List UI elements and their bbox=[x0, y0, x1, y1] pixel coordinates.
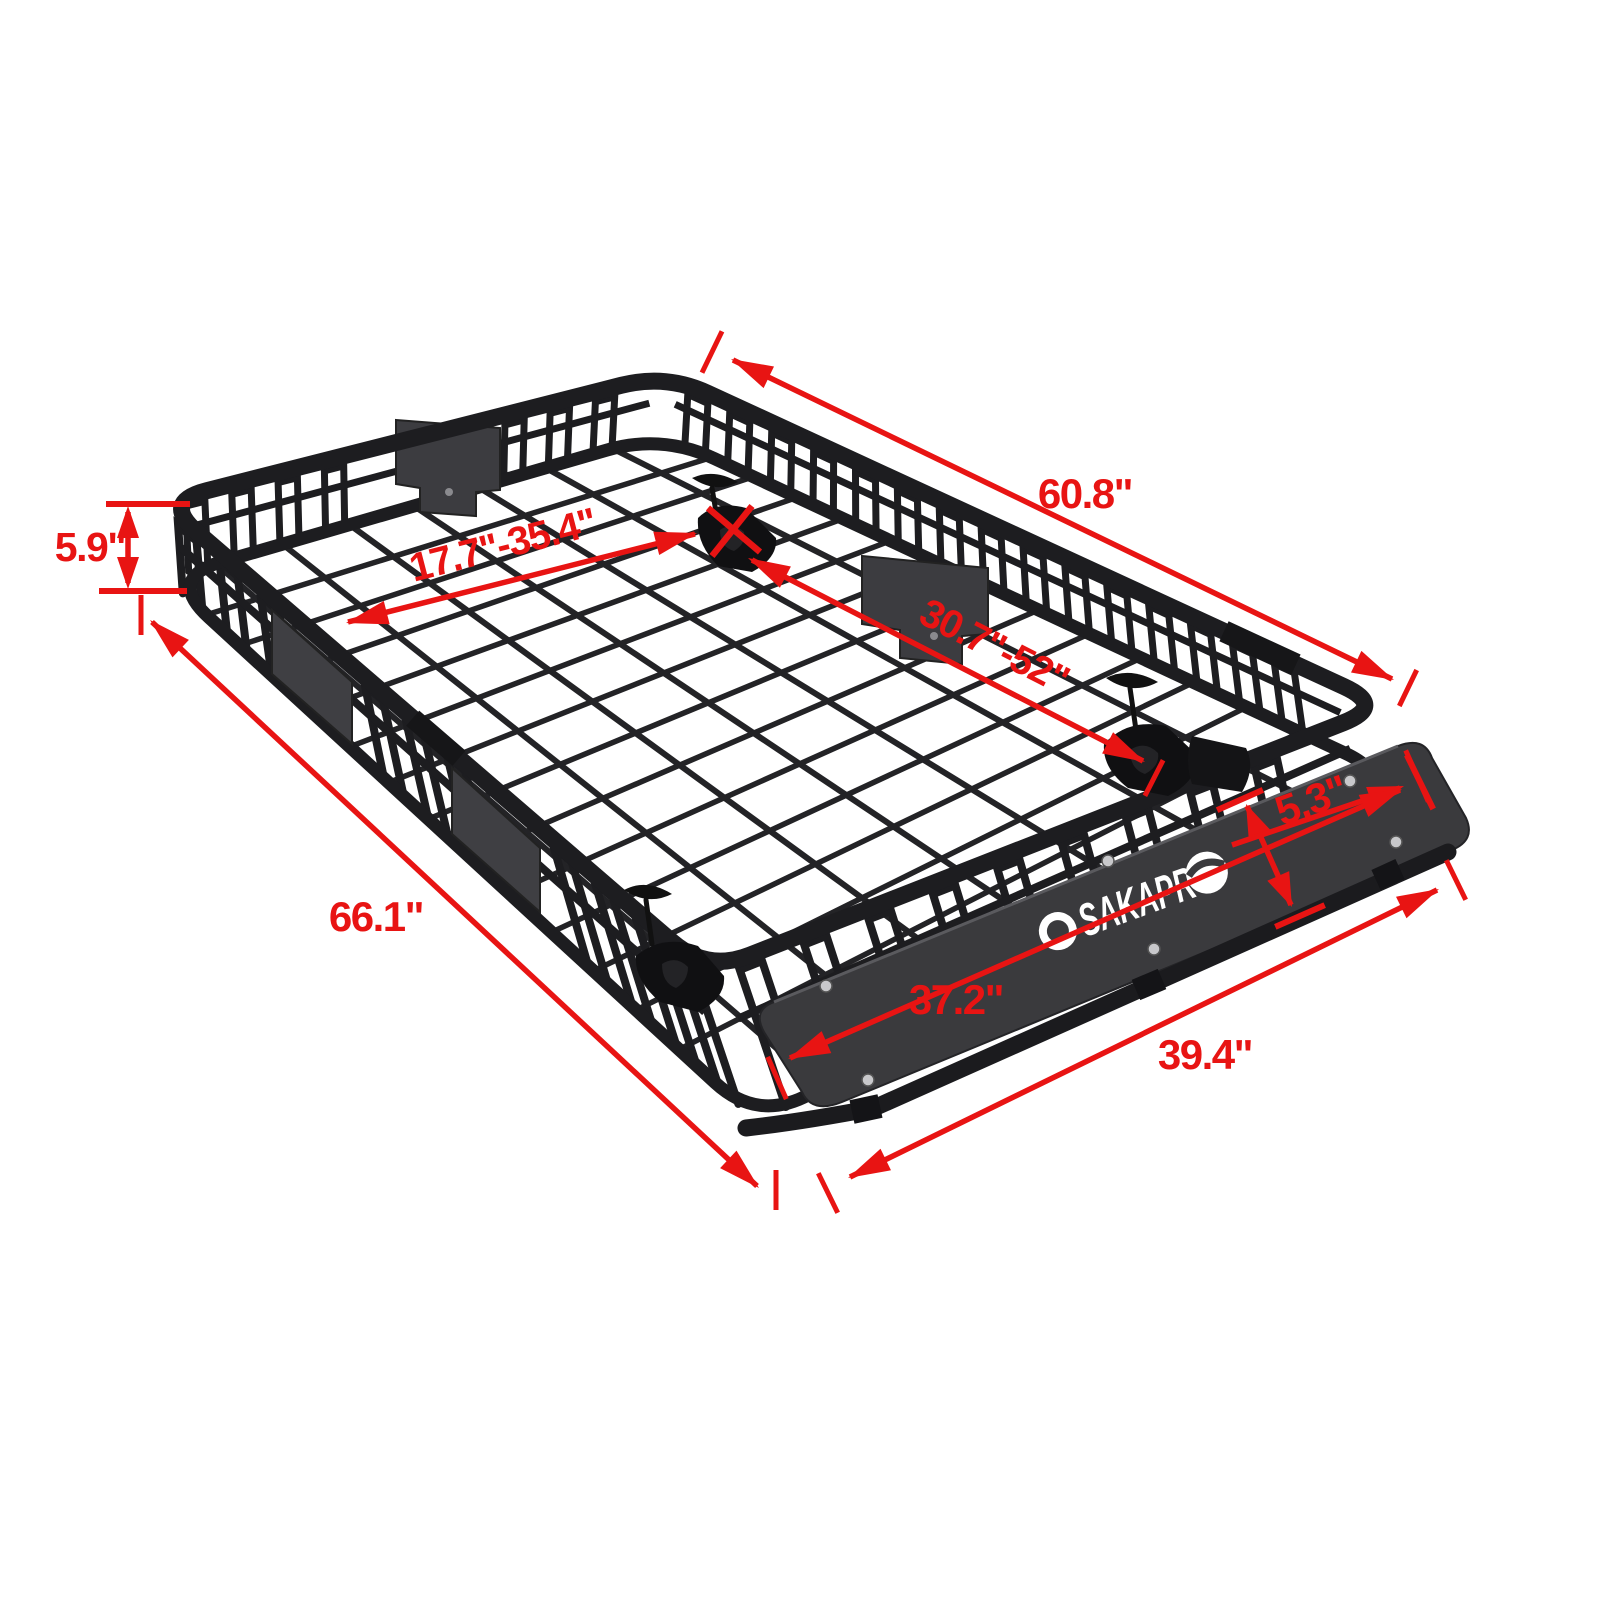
svg-text:5.9": 5.9" bbox=[55, 524, 125, 570]
svg-text:39.4": 39.4" bbox=[1158, 1031, 1252, 1078]
svg-text:60.8": 60.8" bbox=[1038, 470, 1132, 517]
svg-text:66.1": 66.1" bbox=[329, 893, 423, 940]
svg-text:37.2": 37.2" bbox=[909, 976, 1003, 1023]
